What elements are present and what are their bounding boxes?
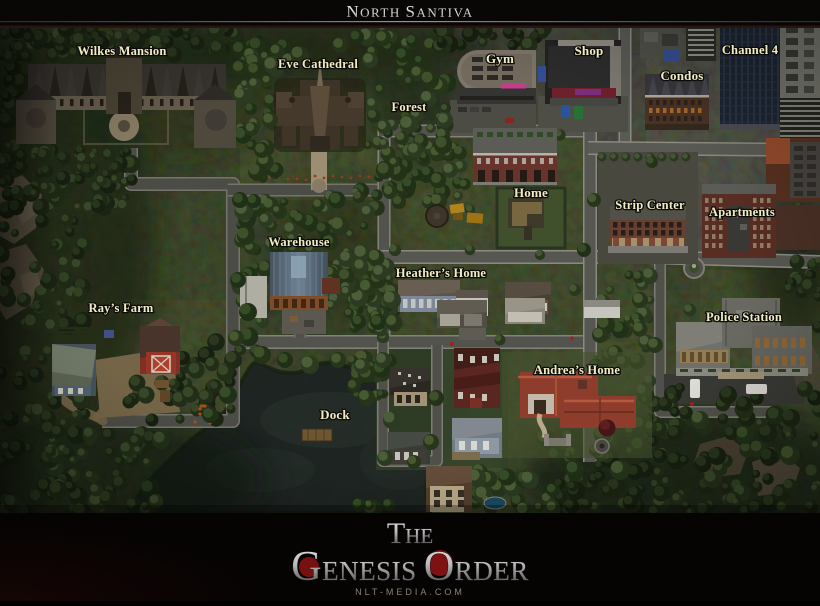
svg-text:Gym: Gym <box>486 51 514 66</box>
svg-text:Apartments: Apartments <box>709 205 775 219</box>
svg-text:Forest: Forest <box>392 100 428 114</box>
svg-text:NORTH SANTIVA: NORTH SANTIVA <box>346 2 473 21</box>
svg-text:Heather’s Home: Heather’s Home <box>396 266 487 280</box>
svg-text:Dock: Dock <box>320 407 350 422</box>
svg-text:Warehouse: Warehouse <box>268 235 330 249</box>
svg-text:Ray’s Farm: Ray’s Farm <box>88 301 153 315</box>
svg-text:Channel 4: Channel 4 <box>722 43 779 57</box>
svg-text:Strip Center: Strip Center <box>615 198 685 212</box>
svg-text:Condos: Condos <box>660 68 703 83</box>
svg-text:NLT-MEDIA.COM: NLT-MEDIA.COM <box>355 587 465 597</box>
svg-text:Police Station: Police Station <box>706 310 782 324</box>
svg-text:Andrea’s Home: Andrea’s Home <box>534 363 621 377</box>
svg-text:Shop: Shop <box>575 43 604 58</box>
svg-text:Eve Cathedral: Eve Cathedral <box>278 57 358 71</box>
svg-text:Wilkes Mansion: Wilkes Mansion <box>77 44 166 58</box>
svg-text:Home: Home <box>514 185 548 200</box>
